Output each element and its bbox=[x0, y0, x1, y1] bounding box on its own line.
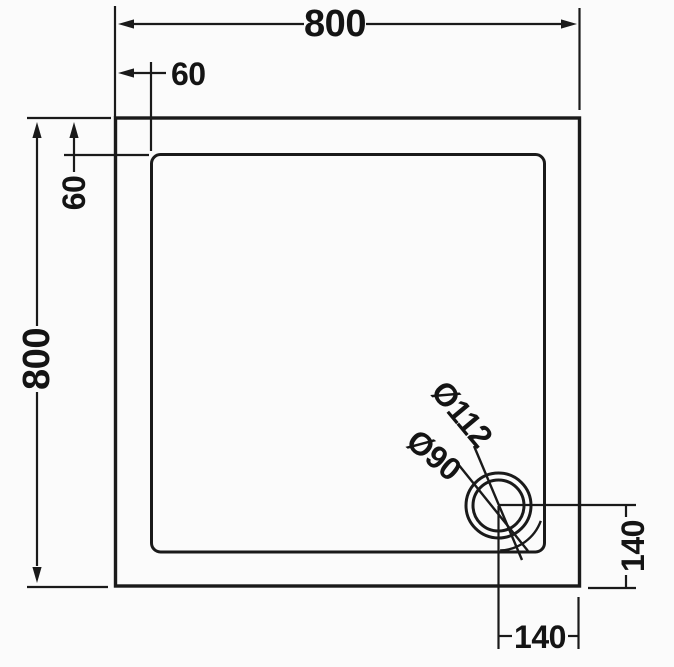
arrowhead-up-icon bbox=[32, 122, 41, 138]
arrowhead-left-icon bbox=[118, 68, 134, 77]
dim-rim-inset-top-label: 60 bbox=[171, 56, 206, 92]
dim-rim-inset-top: 60 bbox=[118, 56, 206, 151]
arrowhead-left-icon bbox=[118, 19, 134, 28]
dim-overall-depth-label: 800 bbox=[16, 328, 58, 390]
dim-waste-to-bottom-label: 140 bbox=[615, 520, 651, 572]
tray-outer-edge bbox=[116, 118, 580, 586]
dim-waste-to-right: 140 bbox=[499, 597, 579, 655]
arrowhead-up-icon bbox=[69, 122, 78, 138]
arrowhead-right-icon bbox=[561, 19, 577, 28]
tray-inner-rim bbox=[152, 155, 545, 553]
dim-waste-to-right-label: 140 bbox=[514, 619, 566, 655]
dim-overall-width-label: 800 bbox=[304, 3, 366, 45]
dim-rim-inset-left: 60 bbox=[56, 122, 149, 210]
shower-tray-drawing: 800 800 60 60 140 140 bbox=[0, 0, 674, 667]
dim-rim-inset-left-label: 60 bbox=[56, 176, 92, 211]
arrowhead-down-icon bbox=[32, 567, 41, 583]
technical-drawing: 800 800 60 60 140 140 bbox=[0, 0, 674, 667]
dim-waste-to-bottom: 140 bbox=[588, 505, 651, 588]
